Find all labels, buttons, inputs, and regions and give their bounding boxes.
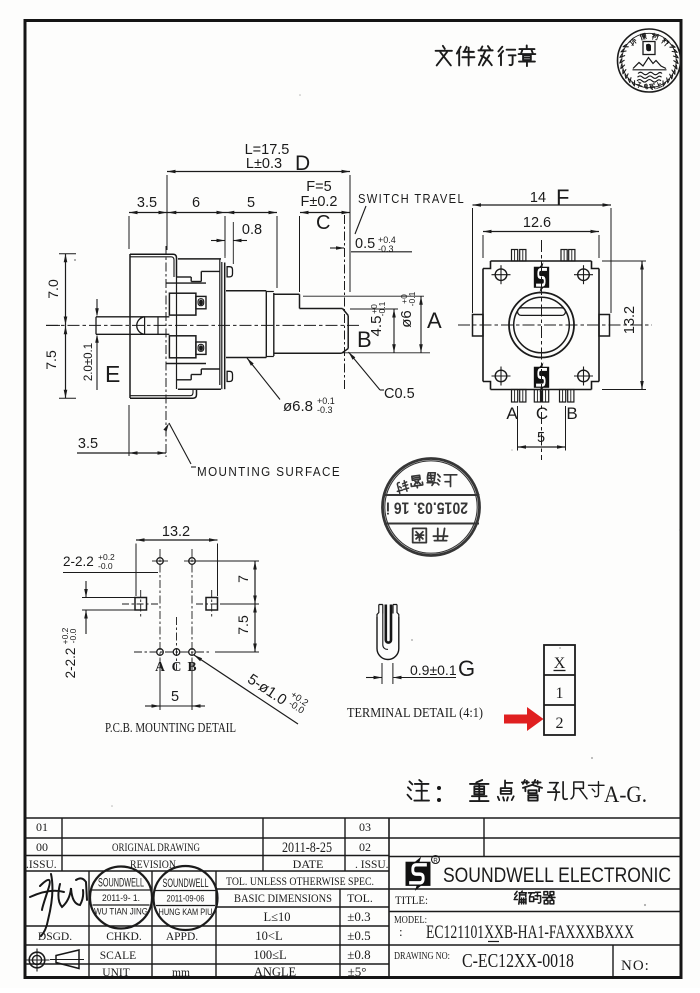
svg-text:-0.3: -0.3 <box>317 405 333 415</box>
svg-text:13.2: 13.2 <box>162 524 190 540</box>
svg-text:-0.1: -0.1 <box>377 301 387 316</box>
svg-text:5: 5 <box>247 195 255 211</box>
svg-text:C: C <box>536 404 548 423</box>
svg-text:7.5: 7.5 <box>235 615 251 635</box>
svg-text:APPD.: APPD. <box>166 931 198 943</box>
svg-text:0.8: 0.8 <box>242 222 262 238</box>
svg-text:±0.3: ±0.3 <box>347 909 370 924</box>
svg-text:-0.3: -0.3 <box>378 244 394 254</box>
svg-text:SOUNDWELL: SOUNDWELL <box>98 878 144 890</box>
svg-text::: : <box>399 924 403 939</box>
svg-text:ø6.8: ø6.8 <box>283 398 313 415</box>
svg-text:2-2.2: 2-2.2 <box>63 648 78 679</box>
svg-text:.ISSU.: .ISSU. <box>26 859 57 871</box>
svg-text:-0.0: -0.0 <box>98 561 113 571</box>
svg-text:100≤L: 100≤L <box>253 948 286 962</box>
svg-text:SOUNDWELL: SOUNDWELL <box>163 878 209 890</box>
svg-text:01: 01 <box>36 820 48 834</box>
svg-text:TITLE:: TITLE: <box>395 893 428 907</box>
svg-text:-0.1: -0.1 <box>407 291 417 306</box>
svg-text:C-EC12XX-0018: C-EC12XX-0018 <box>462 951 574 972</box>
svg-text:TOL.: TOL. <box>347 891 373 905</box>
svg-text:2015.03. 16 i: 2015.03. 16 i <box>386 499 468 517</box>
svg-text:14: 14 <box>530 190 546 206</box>
svg-text:7: 7 <box>235 575 251 583</box>
svg-text:X: X <box>554 655 566 672</box>
svg-text:0.5: 0.5 <box>355 236 375 252</box>
svg-text:ANGLE: ANGLE <box>254 965 297 979</box>
svg-text:ORIGINAL DRAWING: ORIGINAL DRAWING <box>112 842 200 854</box>
svg-text:SWITCH TRAVEL: SWITCH TRAVEL <box>358 191 465 206</box>
svg-text:-0.0: -0.0 <box>68 628 78 643</box>
svg-text:F=5: F=5 <box>306 179 331 195</box>
svg-text:3.5: 3.5 <box>137 195 157 211</box>
svg-text:F±0.2: F±0.2 <box>301 194 338 210</box>
svg-text:BASIC DIMENSIONS: BASIC DIMENSIONS <box>234 891 332 905</box>
svg-text:CHKD.: CHKD. <box>106 931 142 943</box>
svg-text:B: B <box>566 404 577 423</box>
svg-text:HUNG KAM PIU: HUNG KAM PIU <box>159 906 213 917</box>
svg-text:. ISSU.: . ISSU. <box>355 859 389 871</box>
svg-text:2-2.2: 2-2.2 <box>63 554 94 569</box>
svg-text:7.5: 7.5 <box>43 350 59 370</box>
svg-text:A-G.: A-G. <box>604 782 647 807</box>
svg-text:P.C.B. MOUNTING DETAIL: P.C.B. MOUNTING DETAIL <box>105 721 236 736</box>
svg-text:2011-8-25: 2011-8-25 <box>282 840 332 856</box>
svg-text:ø6: ø6 <box>398 310 415 328</box>
svg-text:mm: mm <box>172 967 190 979</box>
svg-text:12.6: 12.6 <box>523 215 551 231</box>
svg-text:7.0: 7.0 <box>45 279 61 299</box>
svg-text:C0.5: C0.5 <box>384 386 415 402</box>
svg-text:±5°: ±5° <box>348 964 367 979</box>
svg-text:10<L: 10<L <box>255 929 282 943</box>
svg-text:EC121101XXB-HA1-FAXXXBXXX: EC121101XXB-HA1-FAXXXBXXX <box>426 923 634 943</box>
svg-text:SOUNDWELL ELECTRONIC: SOUNDWELL ELECTRONIC <box>443 864 671 887</box>
svg-text:5: 5 <box>537 430 545 446</box>
svg-text:C: C <box>172 659 182 674</box>
svg-text:2.0±0.1: 2.0±0.1 <box>83 343 95 381</box>
svg-text:0.9±0.1: 0.9±0.1 <box>410 662 457 678</box>
svg-text:02: 02 <box>359 840 371 854</box>
svg-text:00: 00 <box>36 840 48 854</box>
svg-text:3.5: 3.5 <box>78 436 98 452</box>
svg-text:DRAWING NO:: DRAWING NO: <box>394 950 450 962</box>
svg-text:F: F <box>556 185 569 210</box>
svg-text:DATE: DATE <box>293 857 324 871</box>
svg-text:SCALE: SCALE <box>100 950 136 962</box>
svg-text:L≤10: L≤10 <box>264 910 291 924</box>
svg-text:±0.8: ±0.8 <box>347 947 370 962</box>
svg-text:E: E <box>105 361 120 387</box>
svg-text:G: G <box>458 656 475 681</box>
svg-text:UNIT: UNIT <box>102 967 129 979</box>
svg-text:5: 5 <box>171 689 179 705</box>
svg-text:REVISION: REVISION <box>130 857 176 871</box>
svg-text:MOUNTING SURFACE: MOUNTING SURFACE <box>197 464 341 479</box>
svg-text:6: 6 <box>192 195 200 211</box>
svg-text:1: 1 <box>556 685 564 702</box>
svg-text:03: 03 <box>359 820 371 834</box>
svg-text:A: A <box>506 404 518 423</box>
svg-text:NO:: NO: <box>621 958 650 974</box>
svg-text:±0.5: ±0.5 <box>347 928 370 943</box>
svg-text:WU TIAN JING: WU TIAN JING <box>94 906 148 917</box>
svg-text:B: B <box>357 327 372 352</box>
svg-text:2: 2 <box>556 715 564 732</box>
svg-text:13.2: 13.2 <box>622 306 638 334</box>
svg-text:A: A <box>427 308 442 333</box>
svg-text:2011-09-06: 2011-09-06 <box>167 894 205 904</box>
svg-text:2011-9- 1.: 2011-9- 1. <box>102 893 140 903</box>
svg-text:TERMINAL DETAIL (4:1): TERMINAL DETAIL (4:1) <box>347 705 483 720</box>
svg-text:TOL. UNLESS OTHERWISE SPEC.: TOL. UNLESS OTHERWISE SPEC. <box>226 874 374 888</box>
svg-text:C: C <box>316 212 330 234</box>
svg-text:L±0.3: L±0.3 <box>246 156 282 172</box>
svg-text:R: R <box>433 859 438 865</box>
